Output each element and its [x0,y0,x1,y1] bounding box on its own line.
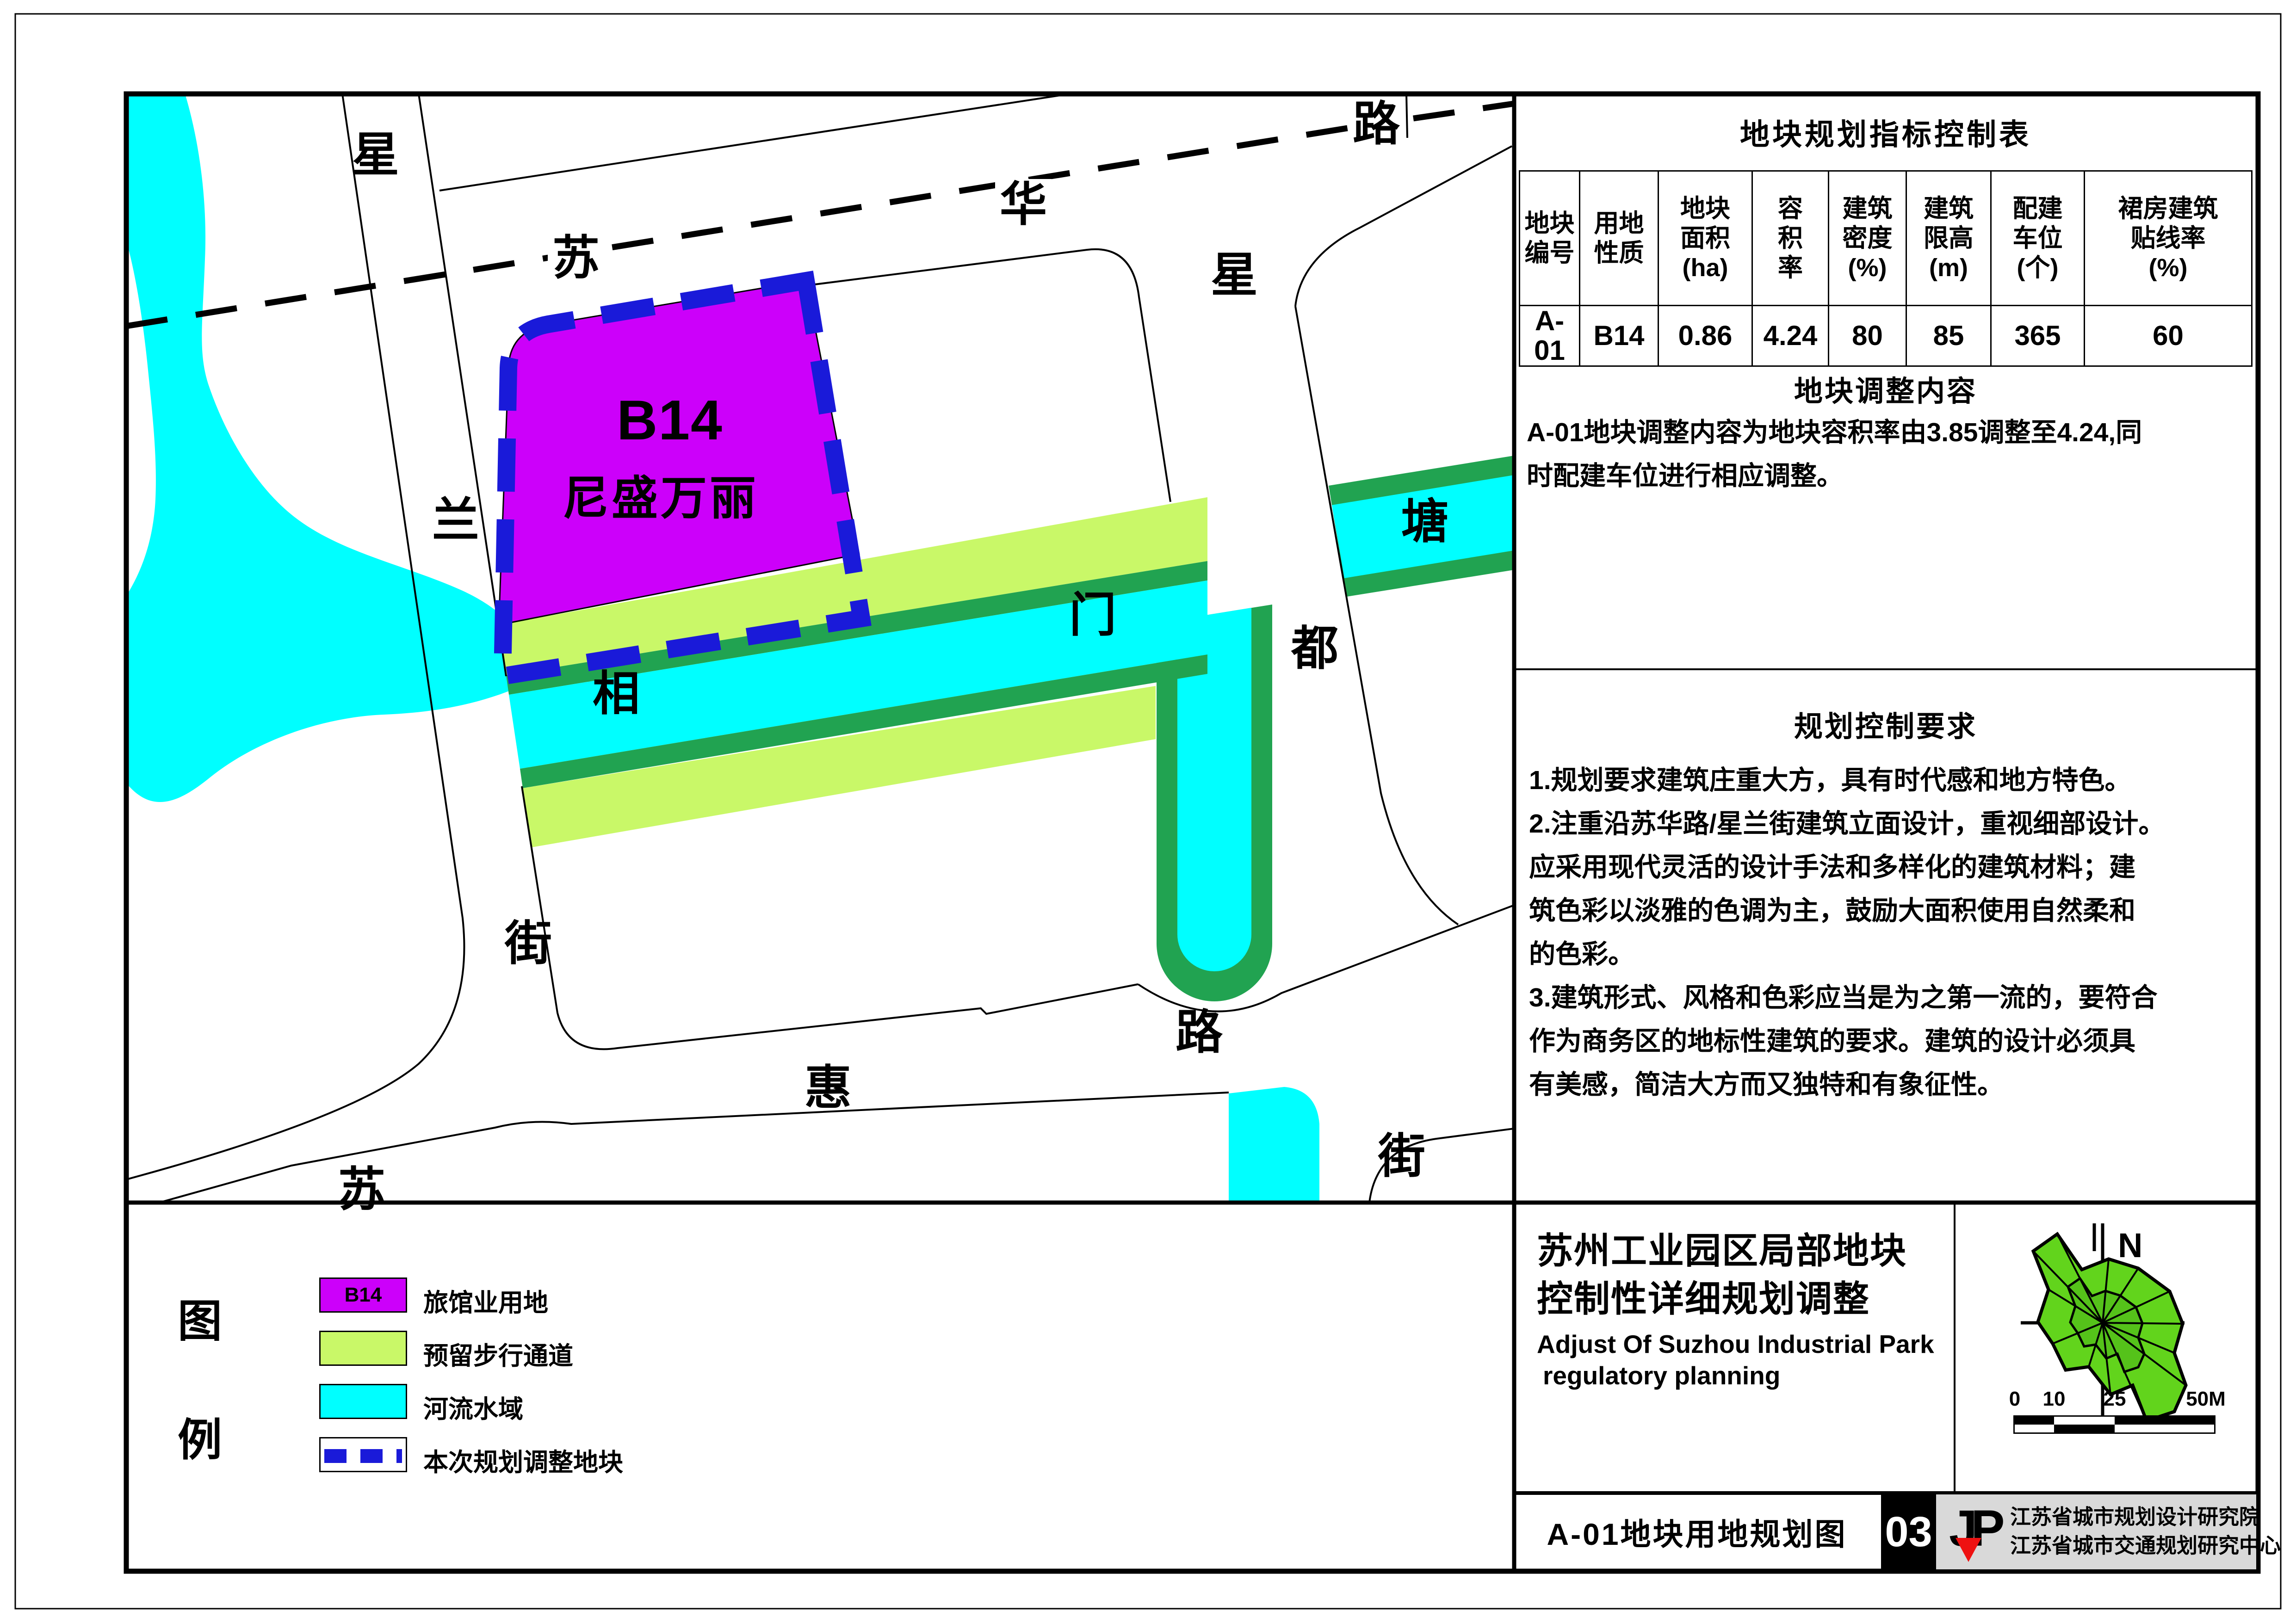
jp-logo-icon: JP [1949,1499,2005,1564]
scale-tick-0: 0 [2009,1388,2020,1411]
road-name-char: 门 [1069,592,1116,639]
drawing-title: A-01地块用地规划图 [1547,1510,1847,1554]
control-section-title: 规划控制要求 [1794,703,1977,745]
road-name-char: 路 [1348,99,1405,149]
project-title-en-line1: Adjust Of Suzhou Industrial Park [1537,1328,1934,1360]
td-parking: 365 [1991,306,2085,366]
th-land-use: 用地 性质 [1580,171,1659,306]
legend-title-top: 图 [178,1285,222,1350]
road-name-char: 兰 [432,497,479,544]
legend-adjust-dash-icon [324,1449,402,1463]
road-name-char: 都 [1291,625,1338,672]
road-name-char: 苏 [338,1166,385,1213]
scale-tick-10: 10 [2043,1388,2066,1411]
road-name-char: 惠 [805,1064,852,1111]
organization-line1: 江苏省城市规划设计研究院 [2010,1503,2281,1531]
td-area: 0.86 [1659,306,1752,366]
road-name-char: 星 [352,131,399,179]
legend-swatch-hotel: B14 [319,1277,407,1313]
compass-north-label: N [2118,1226,2142,1265]
th-podium-ratio: 裙房建筑 贴线率 (%) [2085,171,2252,306]
control-section-body: 1.规划要求建筑庄重大方，具有时代感和地方特色。 2.注重沿苏华路/星兰街建筑立… [1529,759,2251,1106]
project-title-cn-line2: 控制性详细规划调整 [1537,1275,1870,1323]
organization-box: JP 江苏省城市规划设计研究院 江苏省城市交通规划研究中心 [1936,1494,2256,1569]
table-header-row: 地块 编号 用地 性质 地块 面积 (ha) 容 积 率 建筑 密度 (%) 建… [1520,171,2252,306]
road-name-char: 街 [1378,1133,1425,1180]
road-name-char: 路 [1176,1009,1223,1056]
jp-logo-red-mark [1956,1538,1981,1562]
road-name-char: 星 [1211,252,1258,299]
road-name-char: 华 [995,179,1052,230]
legend-swatch-hotel-code: B14 [345,1284,382,1306]
legend-title-bottom: 例 [178,1404,222,1469]
scale-tick-50m: 50M [2186,1388,2226,1411]
td-far: 4.24 [1752,306,1829,366]
project-title-cn-line1: 苏州工业园区局部地块 [1537,1227,1907,1275]
th-block-no: 地块 编号 [1520,171,1580,306]
river-south-polygon [1229,1087,1319,1203]
legend-label-walkway: 预留步行通道 [423,1335,573,1372]
road-name-char: 塘 [1401,498,1448,545]
th-density: 建筑 密度 (%) [1829,171,1906,306]
plan-sheet: 星兰街苏华路星都街相门塘苏惠路 B14 尼盛万丽 地块规划指标控制表 地块 编号… [0,0,2296,1623]
legend-label-river: 河流水域 [423,1388,523,1425]
legend-swatch-river [319,1384,407,1419]
td-height-limit: 85 [1906,306,1991,366]
adjust-section-body: A-01地块调整内容为地块容积率由3.85调整至4.24,同 时配建车位进行相应… [1527,411,2248,498]
td-block-no: A-01 [1520,306,1580,366]
index-table-title: 地块规划指标控制表 [1740,111,2031,154]
td-density: 80 [1829,306,1906,366]
b14-block-code: B14 [617,388,723,452]
sheet-number: 03 [1885,1508,1932,1556]
legend-swatch-adjust [319,1437,407,1472]
road-name-char: 街 [505,920,552,967]
th-far: 容 积 率 [1752,171,1829,306]
project-title-en-line2: regulatory planning [1543,1360,1780,1391]
b14-block-name: 尼盛万丽 [563,461,759,528]
scale-bar [2013,1415,2216,1434]
td-podium-ratio: 60 [2085,306,2252,366]
suhua-road-centerline [126,104,1514,326]
index-control-table: 地块 编号 用地 性质 地块 面积 (ha) 容 积 率 建筑 密度 (%) 建… [1519,170,2253,367]
legend-label-adjust: 本次规划调整地块 [423,1442,623,1478]
table-value-row: A-01 B14 0.86 4.24 80 85 365 60 [1520,306,2252,366]
adjust-section-title: 地块调整内容 [1794,368,1977,409]
td-land-use: B14 [1580,306,1659,366]
organization-line2: 江苏省城市交通规划研究中心 [2010,1531,2281,1560]
th-parking: 配建 车位 (个) [1991,171,2085,306]
road-name-char: 相 [593,670,640,717]
legend-label-hotel: 旅馆业用地 [423,1282,548,1319]
scale-tick-25: 25 [2104,1388,2126,1411]
th-area: 地块 面积 (ha) [1659,171,1752,306]
legend-swatch-walkway [319,1331,407,1366]
sheet-number-box: 03 [1881,1494,1936,1569]
th-height-limit: 建筑 限高 (m) [1906,171,1991,306]
road-name-char: 苏 [548,233,604,284]
